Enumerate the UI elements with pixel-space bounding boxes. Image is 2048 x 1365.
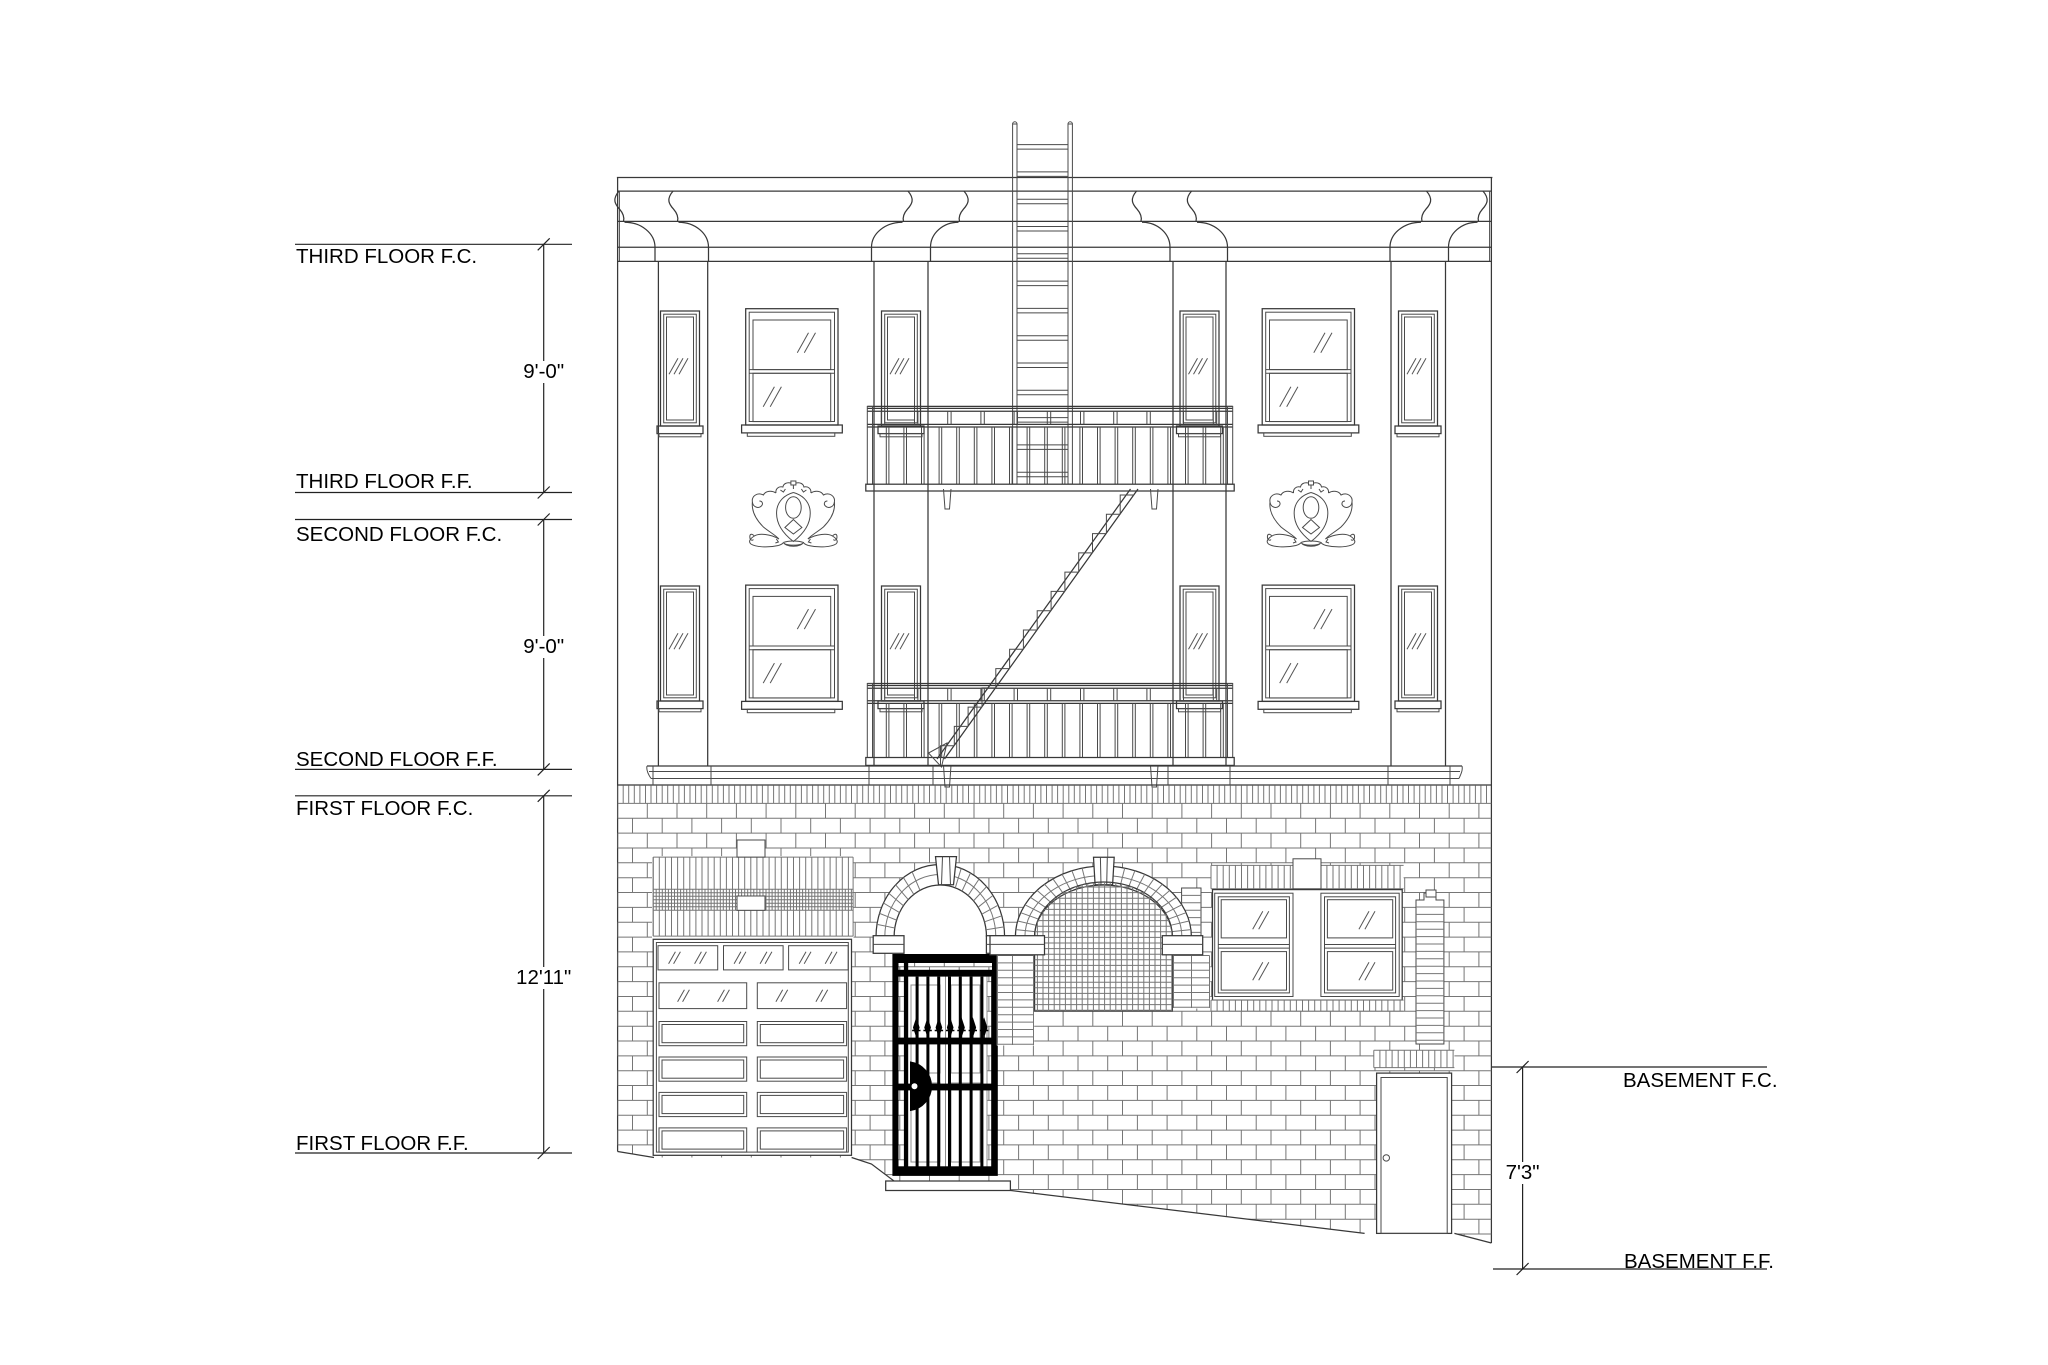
svg-text:SECOND FLOOR F.C.: SECOND FLOOR F.C.	[296, 523, 502, 546]
svg-text:FIRST FLOOR F.C.: FIRST FLOOR F.C.	[296, 797, 473, 820]
svg-text:12'11": 12'11"	[516, 966, 571, 989]
svg-text:9'-0": 9'-0"	[523, 360, 564, 383]
svg-text:7'3": 7'3"	[1506, 1161, 1540, 1184]
svg-text:THIRD FLOOR F.C.: THIRD FLOOR F.C.	[296, 245, 477, 268]
svg-text:BASEMENT F.F.: BASEMENT F.F.	[1624, 1250, 1774, 1273]
svg-text:THIRD FLOOR F.F.: THIRD FLOOR F.F.	[296, 470, 473, 493]
svg-text:FIRST FLOOR F.F.: FIRST FLOOR F.F.	[296, 1132, 469, 1155]
svg-text:SECOND FLOOR F.F.: SECOND FLOOR F.F.	[296, 748, 498, 771]
svg-text:BASEMENT F.C.: BASEMENT F.C.	[1623, 1069, 1778, 1092]
svg-text:9'-0": 9'-0"	[523, 635, 564, 658]
